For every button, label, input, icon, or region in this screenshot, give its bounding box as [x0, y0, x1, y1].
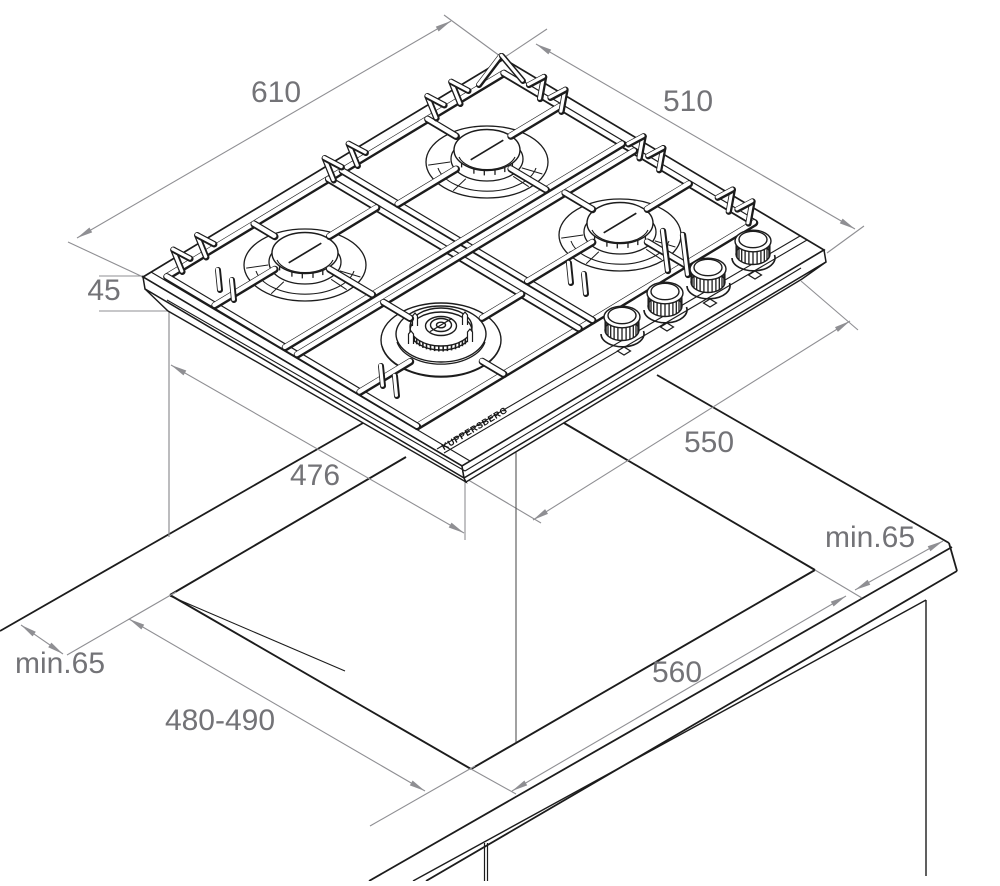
svg-text:550: 550	[684, 426, 734, 459]
svg-text:610: 610	[251, 76, 301, 109]
svg-text:min.65: min.65	[15, 647, 105, 680]
svg-text:476: 476	[290, 459, 340, 492]
svg-text:510: 510	[663, 85, 713, 118]
svg-text:560: 560	[652, 656, 702, 689]
svg-text:45: 45	[87, 274, 120, 307]
svg-text:480-490: 480-490	[165, 704, 275, 737]
svg-text:min.65: min.65	[825, 521, 915, 554]
